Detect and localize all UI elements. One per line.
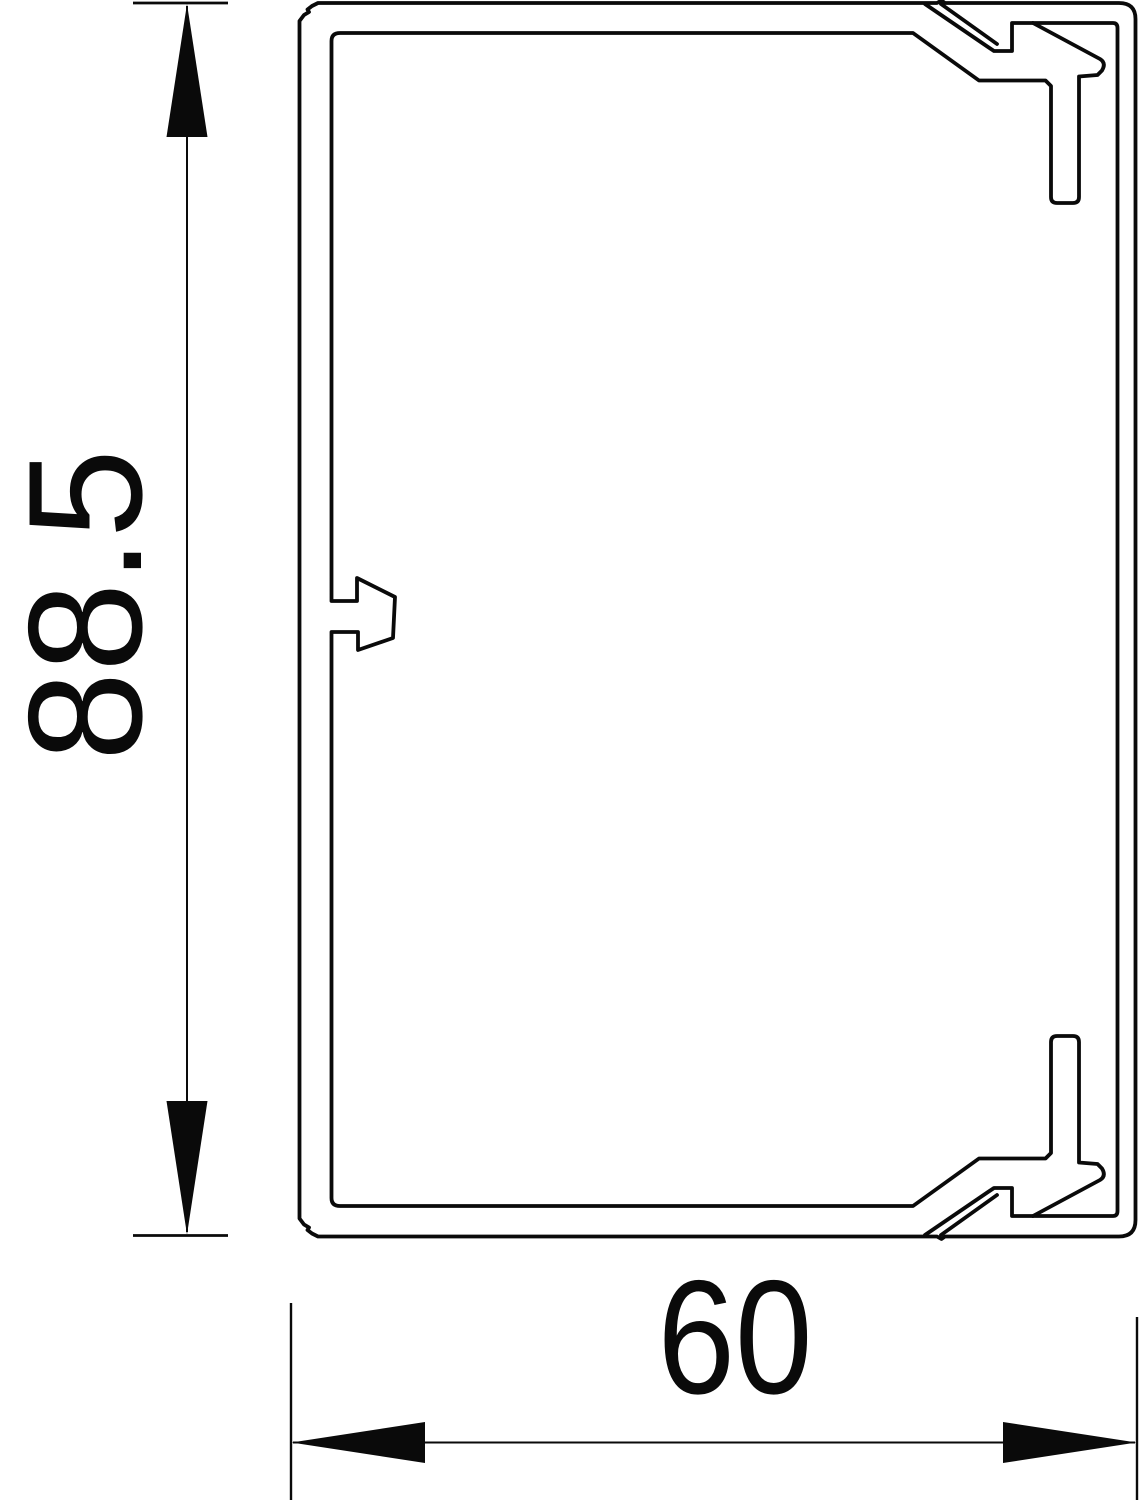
joint-slit-top [941, 4, 997, 44]
arrow-up-icon [167, 4, 208, 137]
profile-cross-section [300, 1, 1136, 1240]
height-dimension: 88.5 [0, 3, 228, 1236]
width-dimension: 60 [291, 1247, 1137, 1500]
arrow-right-icon [1003, 1422, 1137, 1463]
trunking-profile-drawing: 88.5 60 [0, 0, 1139, 1500]
drawing-canvas: 88.5 60 [0, 0, 1139, 1500]
arrow-left-icon [292, 1422, 426, 1463]
base-inner-contour-with-latches [332, 23, 1104, 1216]
lid-inner-rail [925, 4, 1118, 1235]
joint-slit-bottom [941, 1195, 997, 1235]
height-dimension-label: 88.5 [0, 449, 176, 761]
profile-outer-contour [300, 1, 1136, 1240]
arrow-down-icon [167, 1101, 208, 1235]
width-dimension-label: 60 [658, 1247, 813, 1428]
